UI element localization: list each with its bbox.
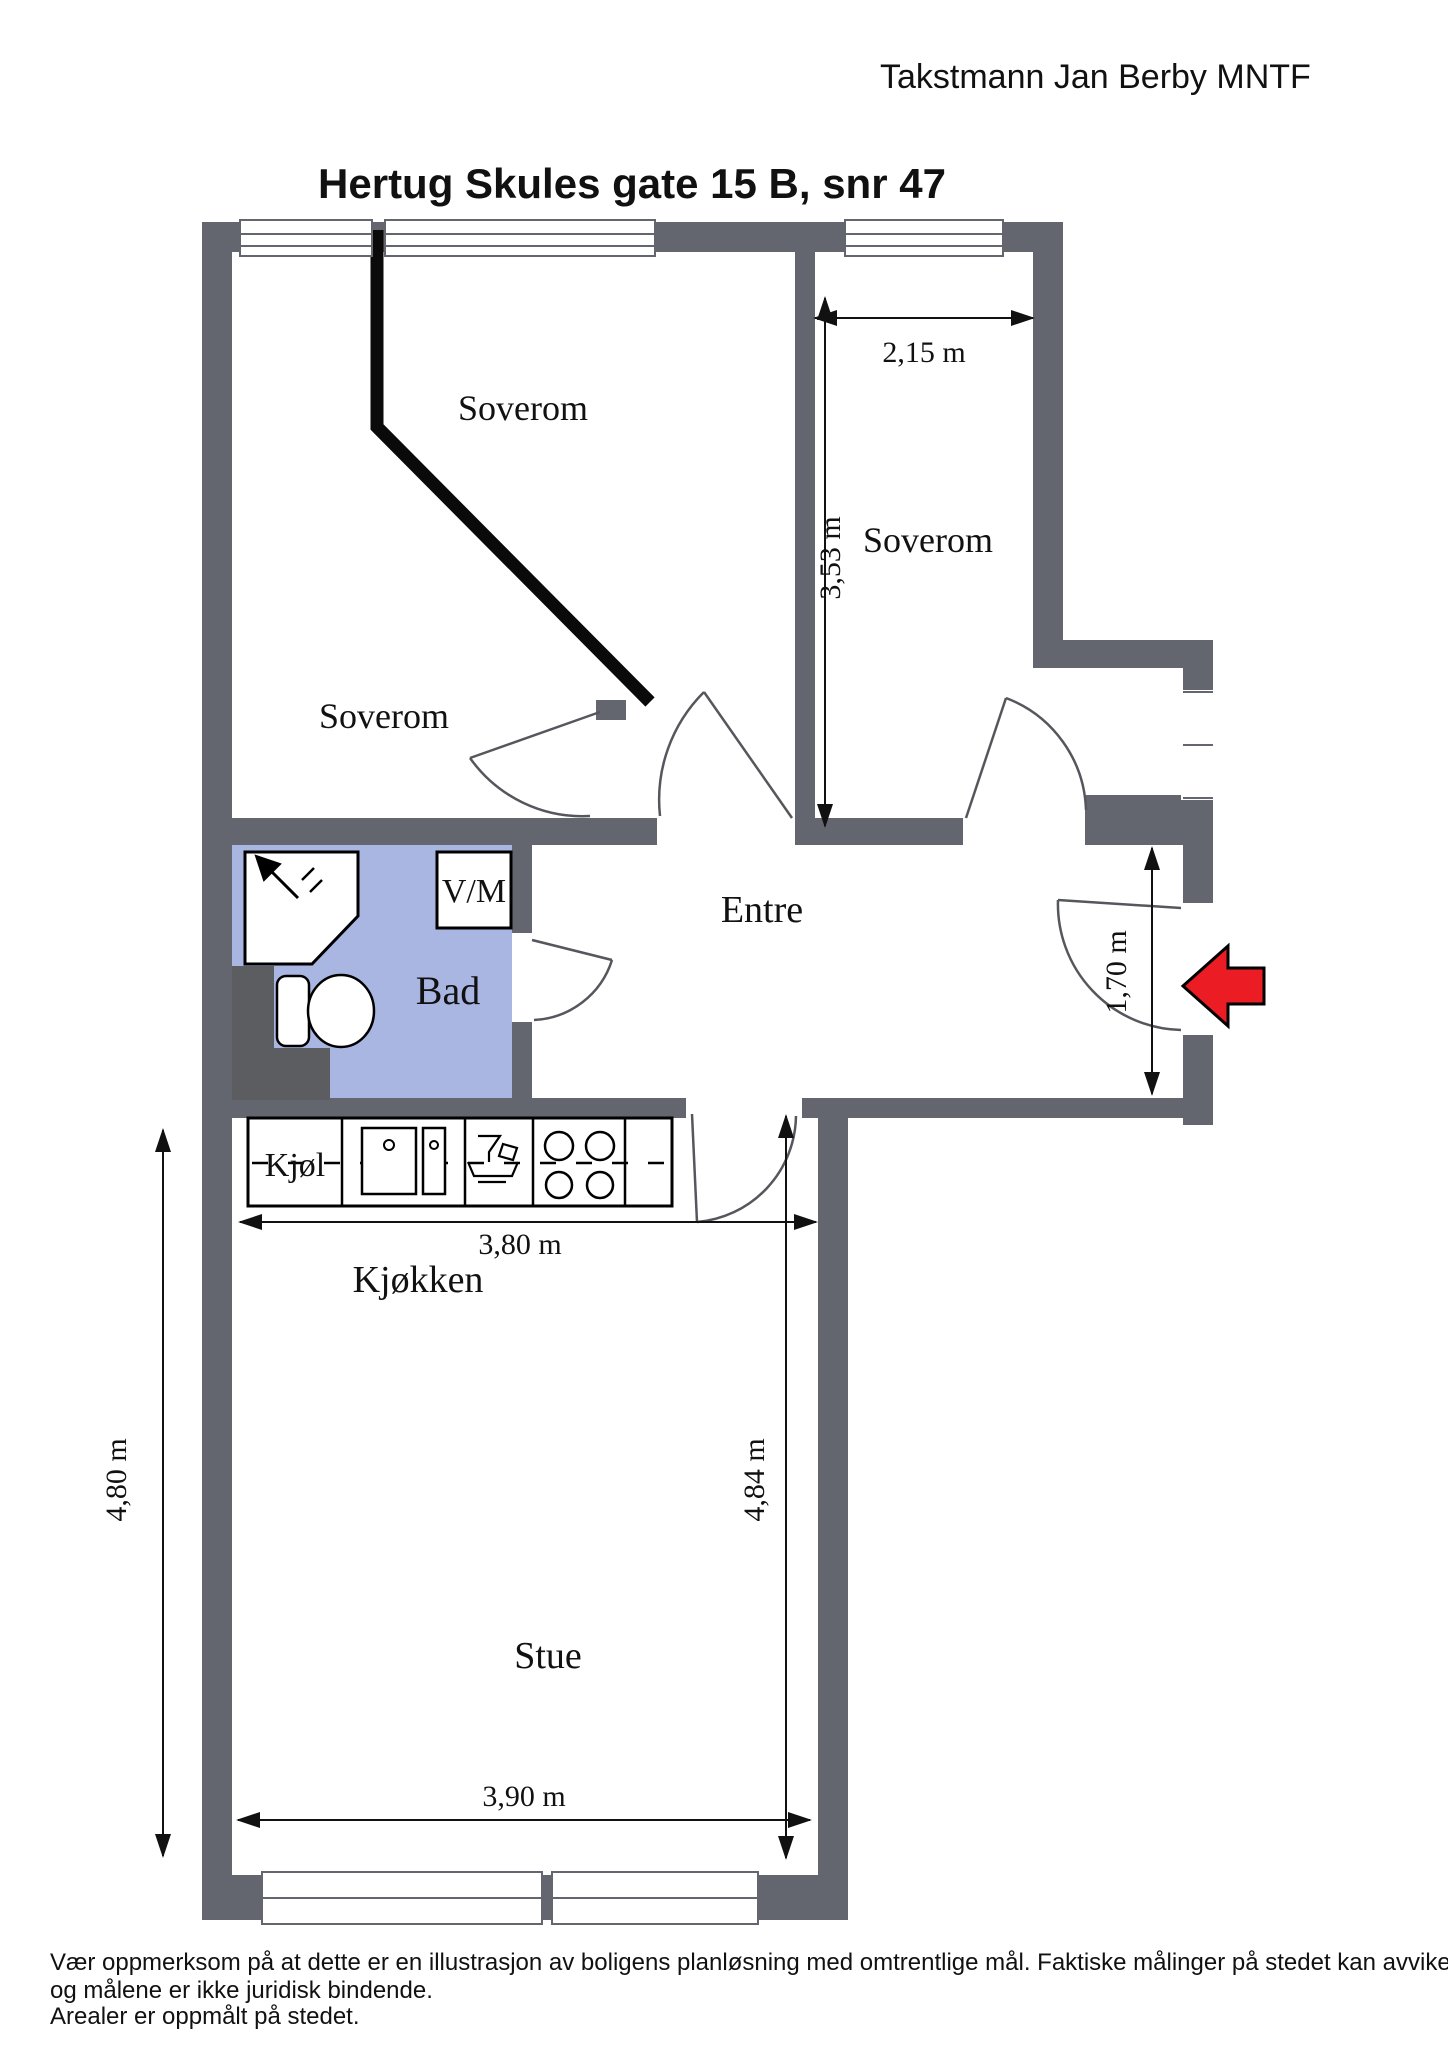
window [845,220,1003,256]
room-label-kitchen: Kjøkken [353,1259,484,1301]
dim-living-depth-right: 4,84 m [738,1438,771,1521]
windows-bottom [262,1872,758,1924]
door-bathroom [532,940,612,1020]
disclaimer-line-3: Arealer er oppmålt på stedet. [50,2003,360,2030]
room-label-living: Stue [514,1635,582,1677]
door-bedroom-left [470,712,600,816]
cabinet-icon [362,1128,445,1194]
window [385,220,655,256]
wall-openings [510,690,1215,1120]
door-kitchen [692,1114,796,1222]
wall-bedrooms-bottom-a [232,818,657,845]
disclaimer-line-2: og målene er ikke juridisk bindende. [50,1977,433,2004]
room-label-bathroom: Bad [416,968,480,1013]
floorplan-page: Takstmann Jan Berby MNTF Hertug Skules g… [0,0,1448,2048]
room-label-entry: Entre [721,889,803,931]
door-bedroom-right [966,698,1086,818]
wall-black-partition [377,230,650,702]
wall-door-stub [596,700,626,720]
wall-right-upper [1033,222,1063,668]
window [552,1872,758,1924]
dim-living-width: 3,90 m [482,1780,565,1813]
room-label-bedroom-middle: Soverom [458,388,588,428]
window [262,1872,542,1924]
room-label-bedroom-left: Soverom [319,696,449,736]
room-label-laundry: V/M [442,873,506,910]
dim-entry-opening: 1,70 m [1100,930,1133,1013]
dim-living-depth-left: 4,80 m [100,1438,133,1521]
wall-bedrooms-bottom-b [795,818,963,845]
wall-kitchen-right [818,1098,848,1920]
wall-left [202,222,232,1920]
page-title: Hertug Skules gate 15 B, snr 47 [318,160,946,207]
disclaimer-line-1: Vær oppmerksom på at dette er en illustr… [50,1949,1448,1976]
door-bedroom-middle [659,692,792,818]
window [240,220,372,256]
dim-kitchen-width: 3,80 m [478,1228,561,1261]
toilet-icon [277,975,374,1047]
wall-divider-bedrooms [795,252,815,818]
dim-bedroom-right-depth: 3,53 m [814,516,847,599]
wall-bedrooms-bottom-c [1085,795,1183,845]
room-label-bedroom-right: Soverom [863,520,993,560]
windows-top [240,220,1003,256]
dim-bedroom-right-width: 2,15 m [882,336,965,369]
room-label-fridge: Kjøl [265,1147,325,1184]
surveyor-name: Takstmann Jan Berby MNTF [880,58,1311,96]
